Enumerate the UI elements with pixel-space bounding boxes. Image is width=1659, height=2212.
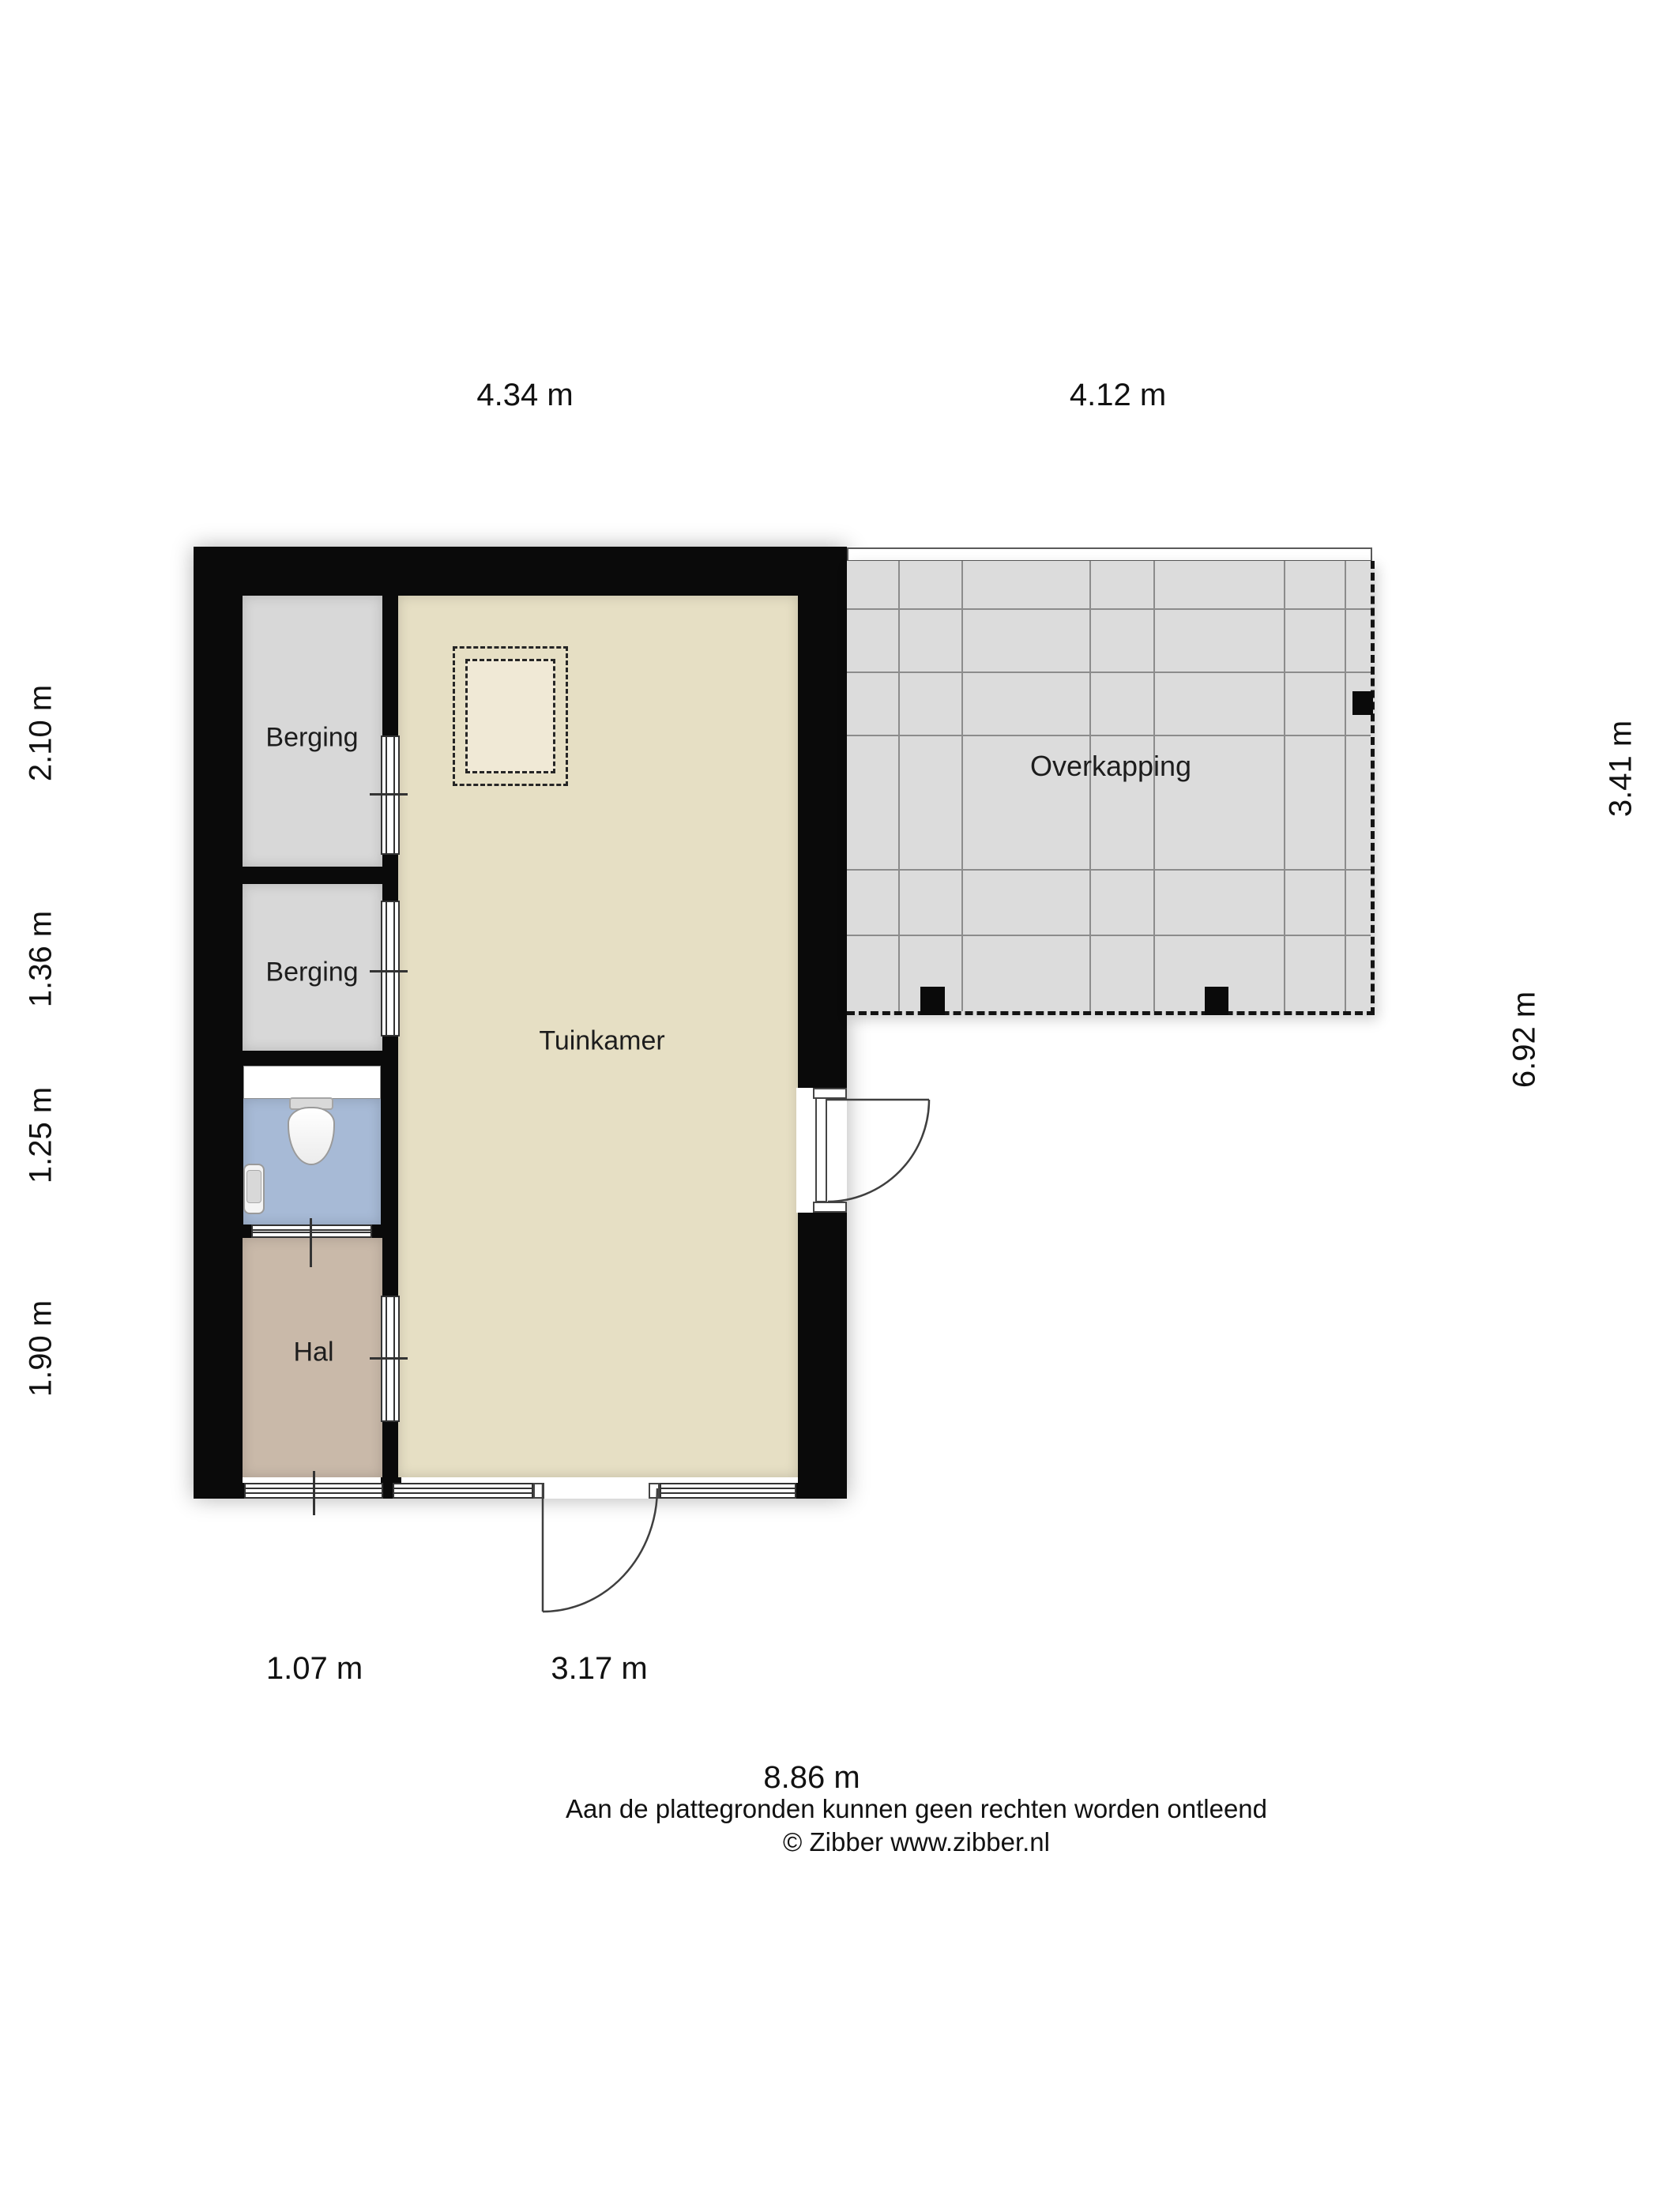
canopy-post-icon (1205, 987, 1228, 1015)
door-frame-right-icon (649, 1483, 660, 1499)
canopy-post-icon (920, 987, 945, 1015)
sink-basin-icon (246, 1170, 261, 1203)
dim-total-width: 8.86 m (247, 1767, 1376, 1788)
dim-label: 3.41 m (1602, 711, 1641, 826)
window-tick-icon (370, 793, 408, 796)
label-overkapping: Overkapping (1030, 750, 1191, 783)
dim-top-inner-width: 4.34 m (244, 385, 806, 405)
dim-label: 1.90 m (22, 1291, 61, 1406)
tile-gridline (1284, 561, 1285, 1011)
dim-label: 4.34 m (467, 385, 582, 405)
tile-gridline (898, 561, 900, 1011)
door-frame-left-icon (533, 1483, 544, 1499)
window-tick-icon (370, 970, 408, 972)
label-hal: Hal (293, 1337, 333, 1368)
label-tuinkamer: Tuinkamer (539, 1026, 664, 1057)
dim-label: 2.10 m (22, 675, 61, 791)
dim-overkapping-width: 4.12 m (857, 385, 1379, 405)
building-walls (194, 547, 847, 1499)
dim-label: 6.92 m (1506, 982, 1544, 1097)
floorplan-canvas: Berging Berging Tuinkamer Hal Overkappin… (0, 0, 1659, 2212)
overkapping-area (847, 561, 1375, 1015)
dim-tuinkamer-width: 3.17 m (395, 1658, 803, 1679)
window-bottom-tuinkamer-left-icon (393, 1483, 533, 1499)
skylight-inner-icon (465, 659, 555, 773)
footer-copyright: © Zibber www.zibber.nl (783, 1827, 1050, 1857)
skylight-outline-icon (453, 646, 568, 786)
door-tick-icon (310, 1218, 312, 1267)
window-bottom-tuinkamer-right-icon (660, 1483, 796, 1499)
dim-label: 1.07 m (261, 1658, 367, 1679)
tile-gridline (847, 671, 1371, 673)
dim-label: 1.25 m (22, 1078, 61, 1193)
dim-label: 4.12 m (1060, 385, 1176, 405)
window-tick-icon (370, 1357, 408, 1360)
footer-disclaimer: Aan de plattegronden kunnen geen rechten… (566, 1794, 1267, 1824)
tile-gridline (1153, 561, 1155, 1011)
door-swing-arc-bottom-icon (543, 1488, 657, 1612)
tile-gridline (1089, 561, 1091, 1011)
tile-gridline (847, 735, 1371, 736)
dim-hal-width: 1.07 m (244, 1658, 385, 1679)
canopy-post-icon (1352, 691, 1373, 715)
door-jamb-right-icon (815, 1097, 827, 1202)
dim-label: 1.36 m (22, 901, 61, 1017)
label-berging-bottom: Berging (265, 957, 358, 988)
label-berging-top: Berging (265, 723, 358, 754)
overkapping-roof-edge (847, 547, 1372, 562)
toilet-fixture-counter (243, 1066, 381, 1099)
door-opening-bottom-wall (533, 1477, 660, 1499)
dim-label: 8.86 m (754, 1767, 869, 1788)
bottom-wall-sill (243, 1477, 798, 1483)
tile-gridline (847, 869, 1371, 871)
window-tick-icon (313, 1471, 315, 1515)
tile-gridline (1345, 561, 1346, 1011)
tile-gridline (847, 608, 1371, 610)
tile-gridline (847, 935, 1371, 936)
door-frame-stub-bottom-icon (813, 1202, 847, 1213)
tile-gridline (961, 561, 963, 1011)
window-berging-bottom-icon (381, 901, 400, 1036)
dim-label: 3.17 m (541, 1658, 656, 1679)
